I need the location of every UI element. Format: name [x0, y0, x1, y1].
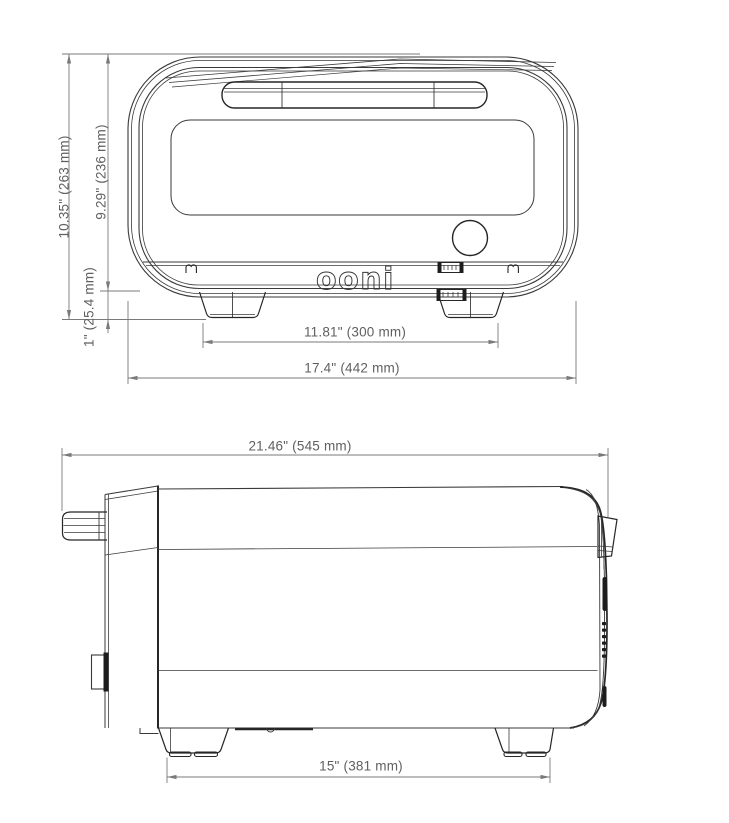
- front-right-foot: [438, 292, 504, 318]
- front-left-foot: [200, 292, 266, 318]
- door-hinge-mark: [603, 577, 608, 611]
- dim-label-overall-width: 17.4" (442 mm): [304, 361, 399, 376]
- dim-foot-height: [106, 291, 110, 333]
- dim-label-body-height: 9.29" (236 mm): [94, 124, 109, 219]
- ooni-logo: ooni: [316, 262, 395, 297]
- power-inlet: [437, 290, 466, 301]
- back-panel: [105, 486, 159, 734]
- rear-knob: [92, 653, 109, 692]
- dim-label-feet-depth: 15" (381 mm): [319, 759, 403, 774]
- control-dial: [453, 221, 488, 256]
- side-left-foot: [159, 728, 229, 757]
- technical-drawing-canvas: ooni: [0, 0, 729, 823]
- left-clip: [186, 265, 196, 273]
- dim-label-overall-height: 10.35" (263 mm): [57, 135, 72, 238]
- side-body: [158, 487, 598, 733]
- side-view: [62, 448, 617, 783]
- oven-door-window: [171, 120, 534, 215]
- side-door: [560, 487, 607, 728]
- oven-top-handle: [222, 82, 487, 108]
- oven-body-outline: [128, 57, 578, 297]
- base-band: ooni: [143, 262, 563, 297]
- right-clip: [508, 265, 518, 273]
- rear-vent: [63, 512, 108, 540]
- side-right-foot: [495, 728, 554, 757]
- dim-label-feet-span: 11.81" (300 mm): [304, 325, 406, 340]
- dim-label-foot-height: 1" (25.4 mm): [82, 267, 97, 347]
- door-lower-mark: [603, 686, 607, 707]
- oven-dimension-drawing: ooni: [0, 0, 729, 823]
- dim-overall-depth: [62, 448, 608, 517]
- door-latch: [438, 263, 463, 273]
- dim-label-overall-depth: 21.46" (545 mm): [248, 439, 351, 454]
- door-handle: [598, 516, 617, 569]
